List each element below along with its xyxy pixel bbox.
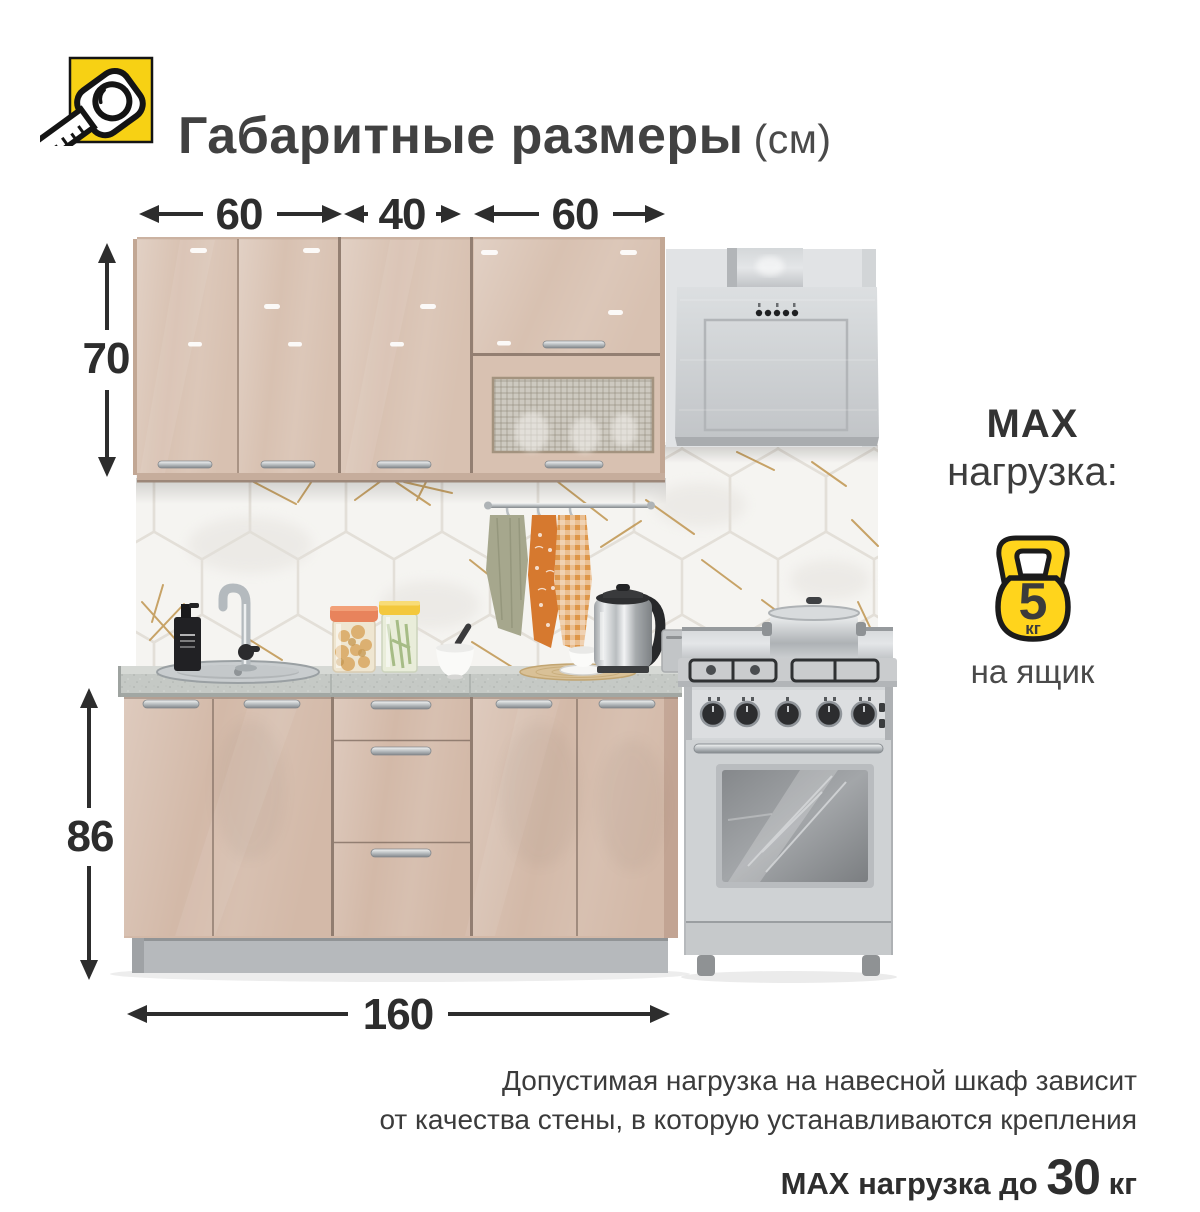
max-load-per: на ящик — [925, 653, 1140, 691]
kettlebell-unit: кг — [1025, 619, 1041, 638]
footnote: Допустимая нагрузка на навесной шкаф зав… — [379, 1062, 1137, 1212]
gas-stove — [678, 597, 897, 983]
dimension-width-1: 60 — [197, 193, 281, 237]
jar-herbs — [379, 601, 420, 672]
units-label: (см) — [754, 116, 832, 162]
wall-cabinets — [133, 237, 665, 483]
footnote-line2: от качества стены, в которую устанавлива… — [379, 1101, 1137, 1140]
plinth — [132, 936, 668, 973]
footnote-max-load: MAX нагрузка до 30 кг — [379, 1143, 1137, 1212]
tape-measure-icon — [40, 46, 168, 146]
stove-leg — [862, 955, 880, 976]
max-load-block: MAX нагрузка: 5 кг на ящик — [925, 402, 1140, 691]
hood-duct — [727, 248, 803, 288]
jar-crackers — [330, 606, 378, 672]
product-dimensions-card: { "header": { "icon": "tape-measure-icon… — [0, 0, 1200, 1200]
range-hood — [666, 248, 879, 447]
dimension-upper-height: 70 — [64, 337, 148, 381]
stove-leg — [697, 955, 715, 976]
footnote-line1: Допустимая нагрузка на навесной шкаф зав… — [379, 1062, 1137, 1101]
glass-cabinet-door — [493, 378, 653, 453]
footnote-max-value: 30 — [1046, 1149, 1100, 1205]
dimension-width-2: 40 — [360, 193, 444, 237]
electric-kettle — [594, 584, 660, 673]
base-cabinets — [110, 697, 690, 982]
max-load-subtitle: нагрузка: — [925, 450, 1140, 494]
dimension-total-width: 160 — [351, 993, 445, 1037]
dimension-width-3: 60 — [533, 193, 617, 237]
max-load-title: MAX — [925, 402, 1140, 446]
oven-door — [686, 740, 891, 922]
dimension-base-height: 86 — [48, 815, 132, 859]
kettlebell-icon: 5 кг — [990, 526, 1076, 644]
page-title: Габаритные размеры(см) — [178, 109, 832, 164]
